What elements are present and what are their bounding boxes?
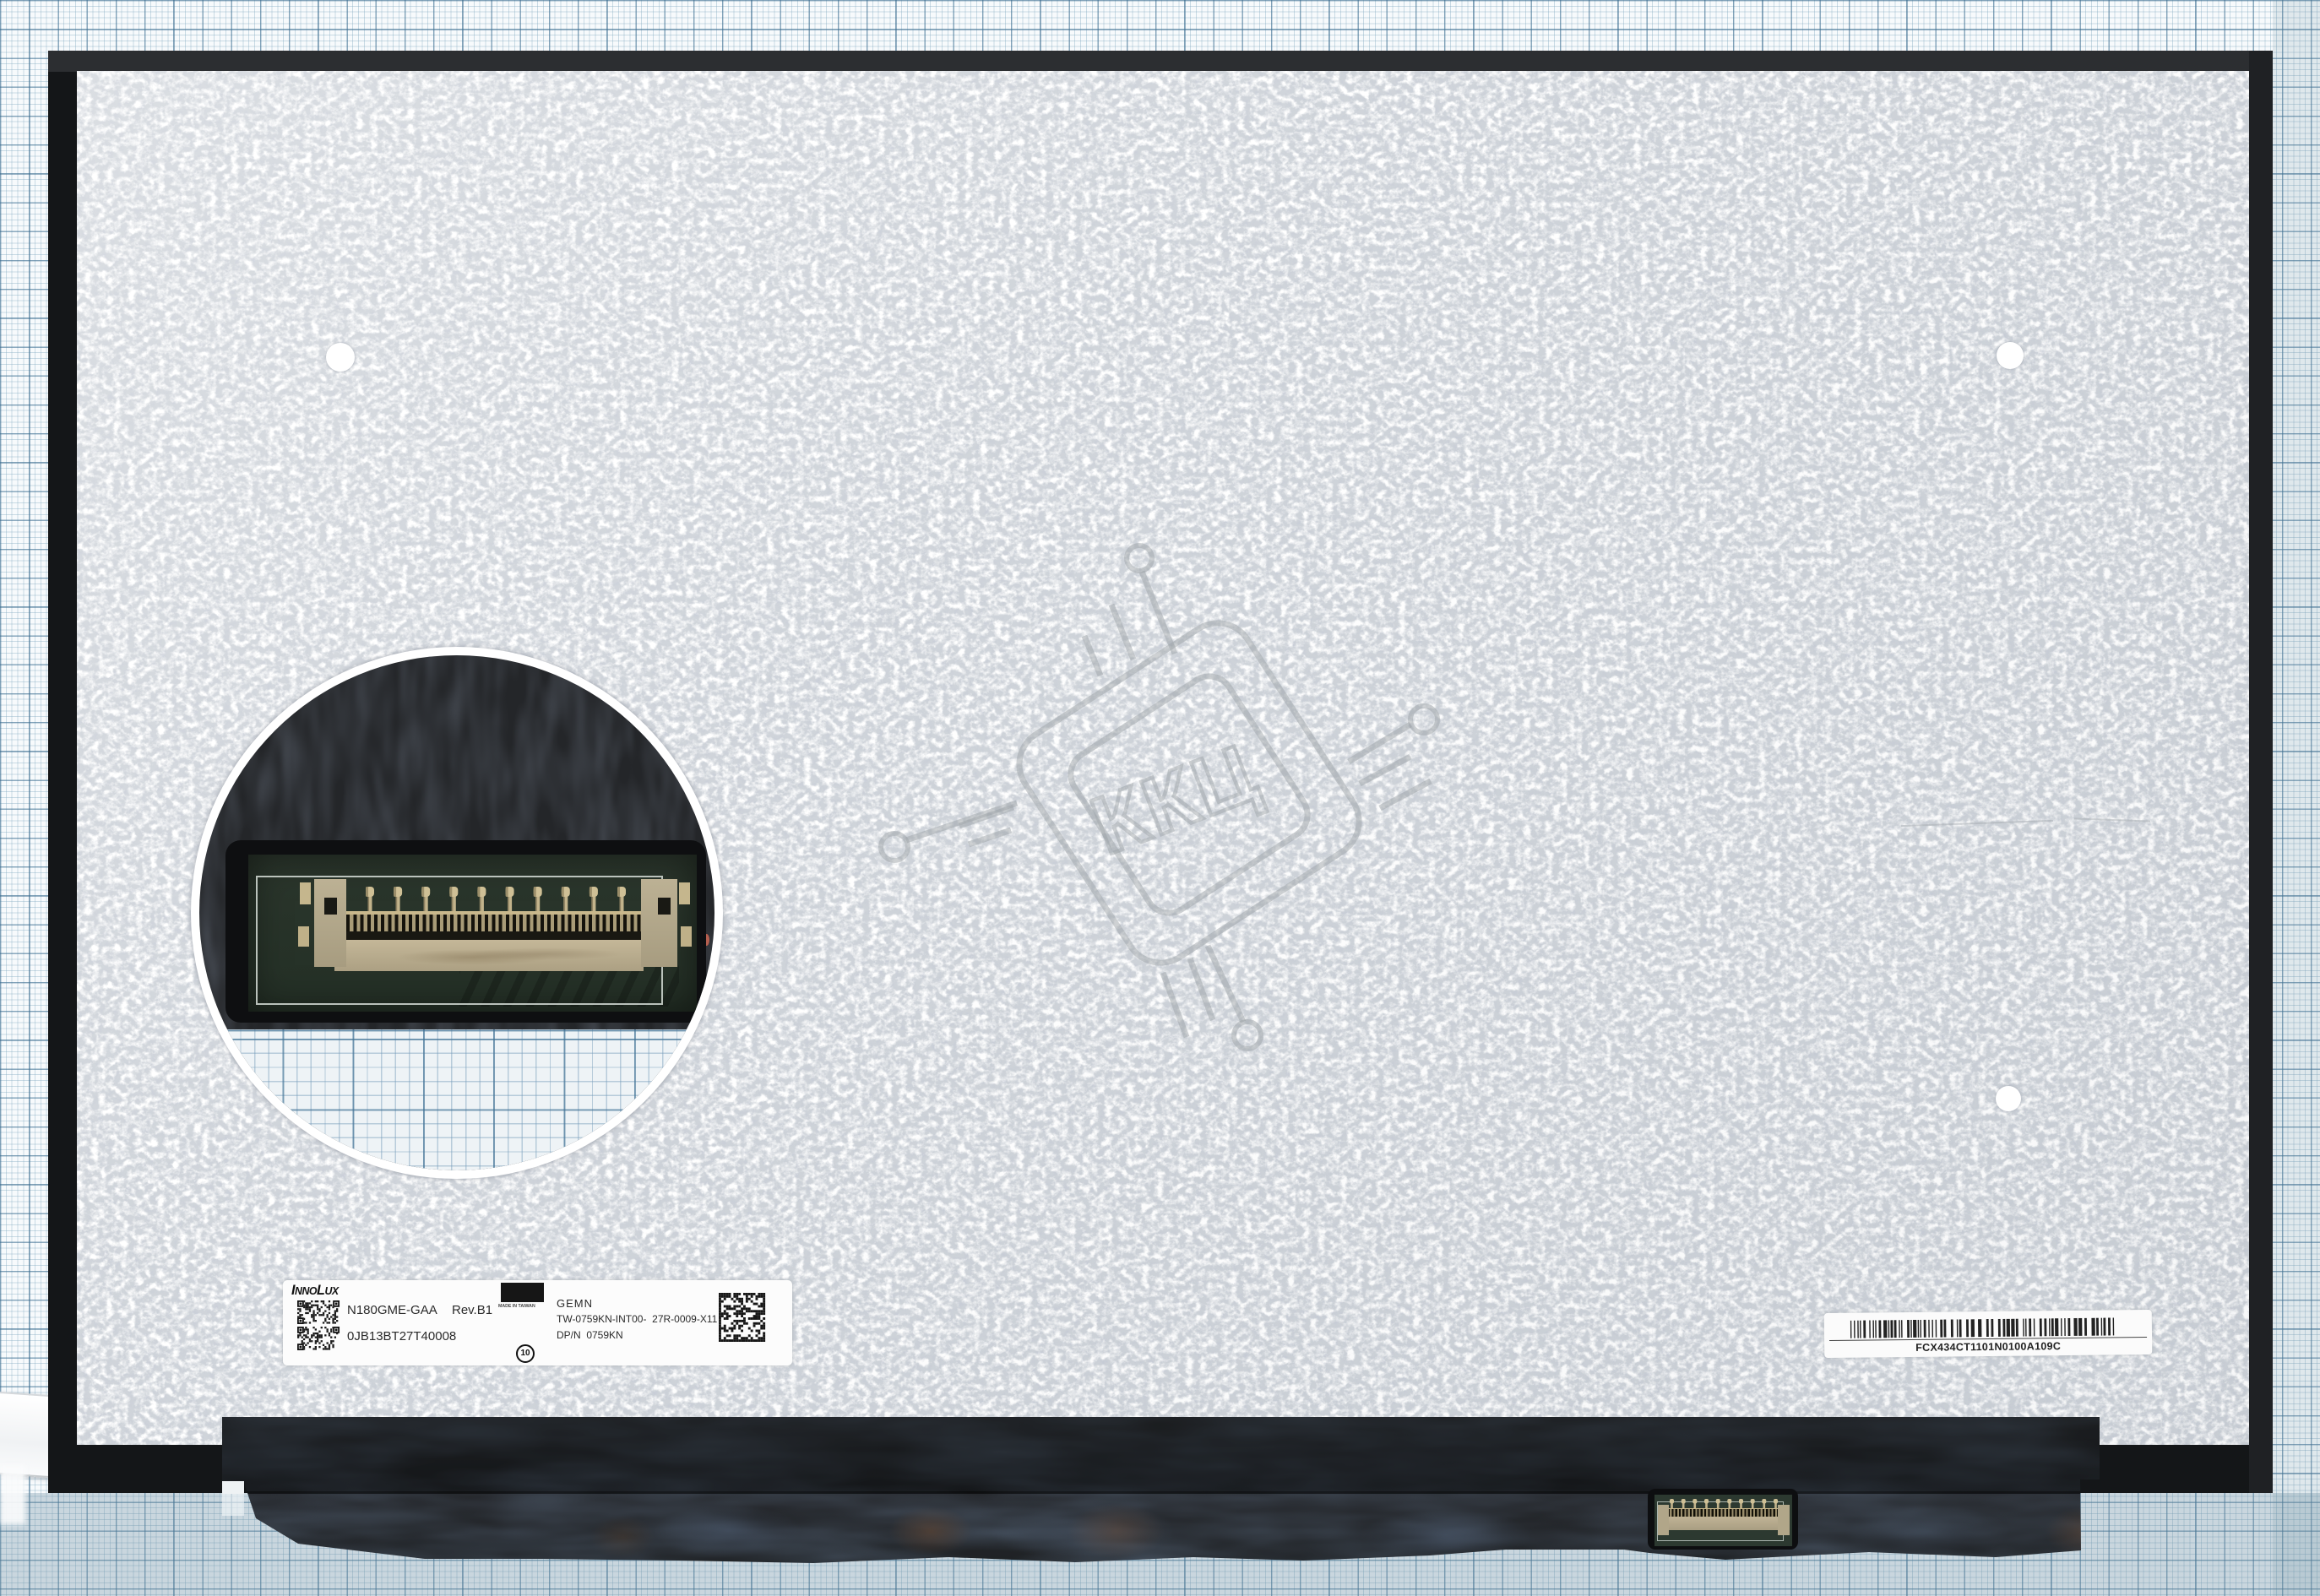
svg-text:ККЦ: ККЦ xyxy=(1080,725,1272,872)
